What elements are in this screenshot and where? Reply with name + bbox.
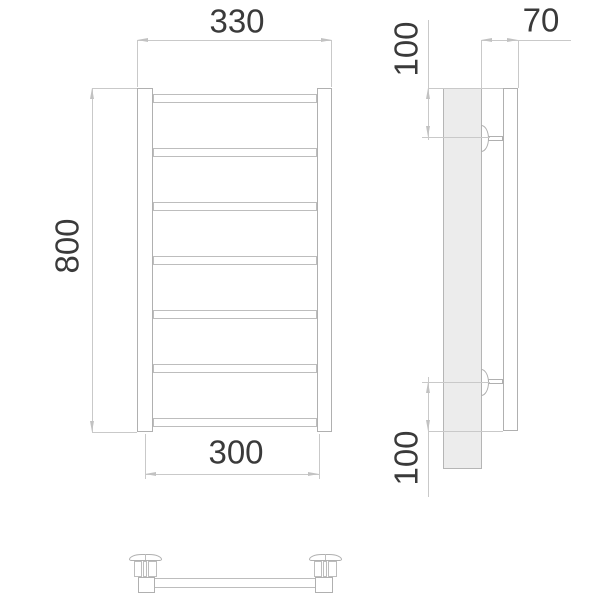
dim-overall-height-label: 800 [51, 218, 84, 273]
left-bracket-stem [143, 561, 147, 577]
technical-drawing-canvas: 330 800 300 70 [0, 0, 600, 600]
bottom-left-post-block [138, 577, 155, 593]
rung [153, 364, 317, 374]
dim-top-offset-label: 100 [390, 21, 423, 76]
bottom-tube [147, 578, 323, 588]
rung [153, 256, 317, 266]
dim-overall-width-label: 330 [209, 5, 264, 38]
right-bracket-stem [323, 561, 327, 577]
left-cap-center-line [145, 554, 146, 560]
dim-rail-length-label: 300 [208, 436, 263, 469]
rung [153, 202, 317, 212]
side-profile-bar [443, 88, 482, 469]
wall-tube [503, 88, 518, 431]
bottom-right-post-block [315, 577, 333, 593]
right-post [317, 88, 333, 432]
dim-depth-label: 70 [523, 4, 560, 37]
rung [153, 418, 317, 428]
left-bracket-collar [134, 561, 143, 577]
left-post [137, 88, 153, 432]
rung [153, 94, 317, 104]
rung [153, 310, 317, 320]
dim-bottom-offset-label: 100 [390, 430, 423, 485]
left-bracket-collar [148, 561, 157, 577]
right-bracket-collar [328, 561, 337, 577]
rung [153, 148, 317, 158]
right-bracket-collar [314, 561, 323, 577]
right-cap-center-line [325, 554, 326, 560]
